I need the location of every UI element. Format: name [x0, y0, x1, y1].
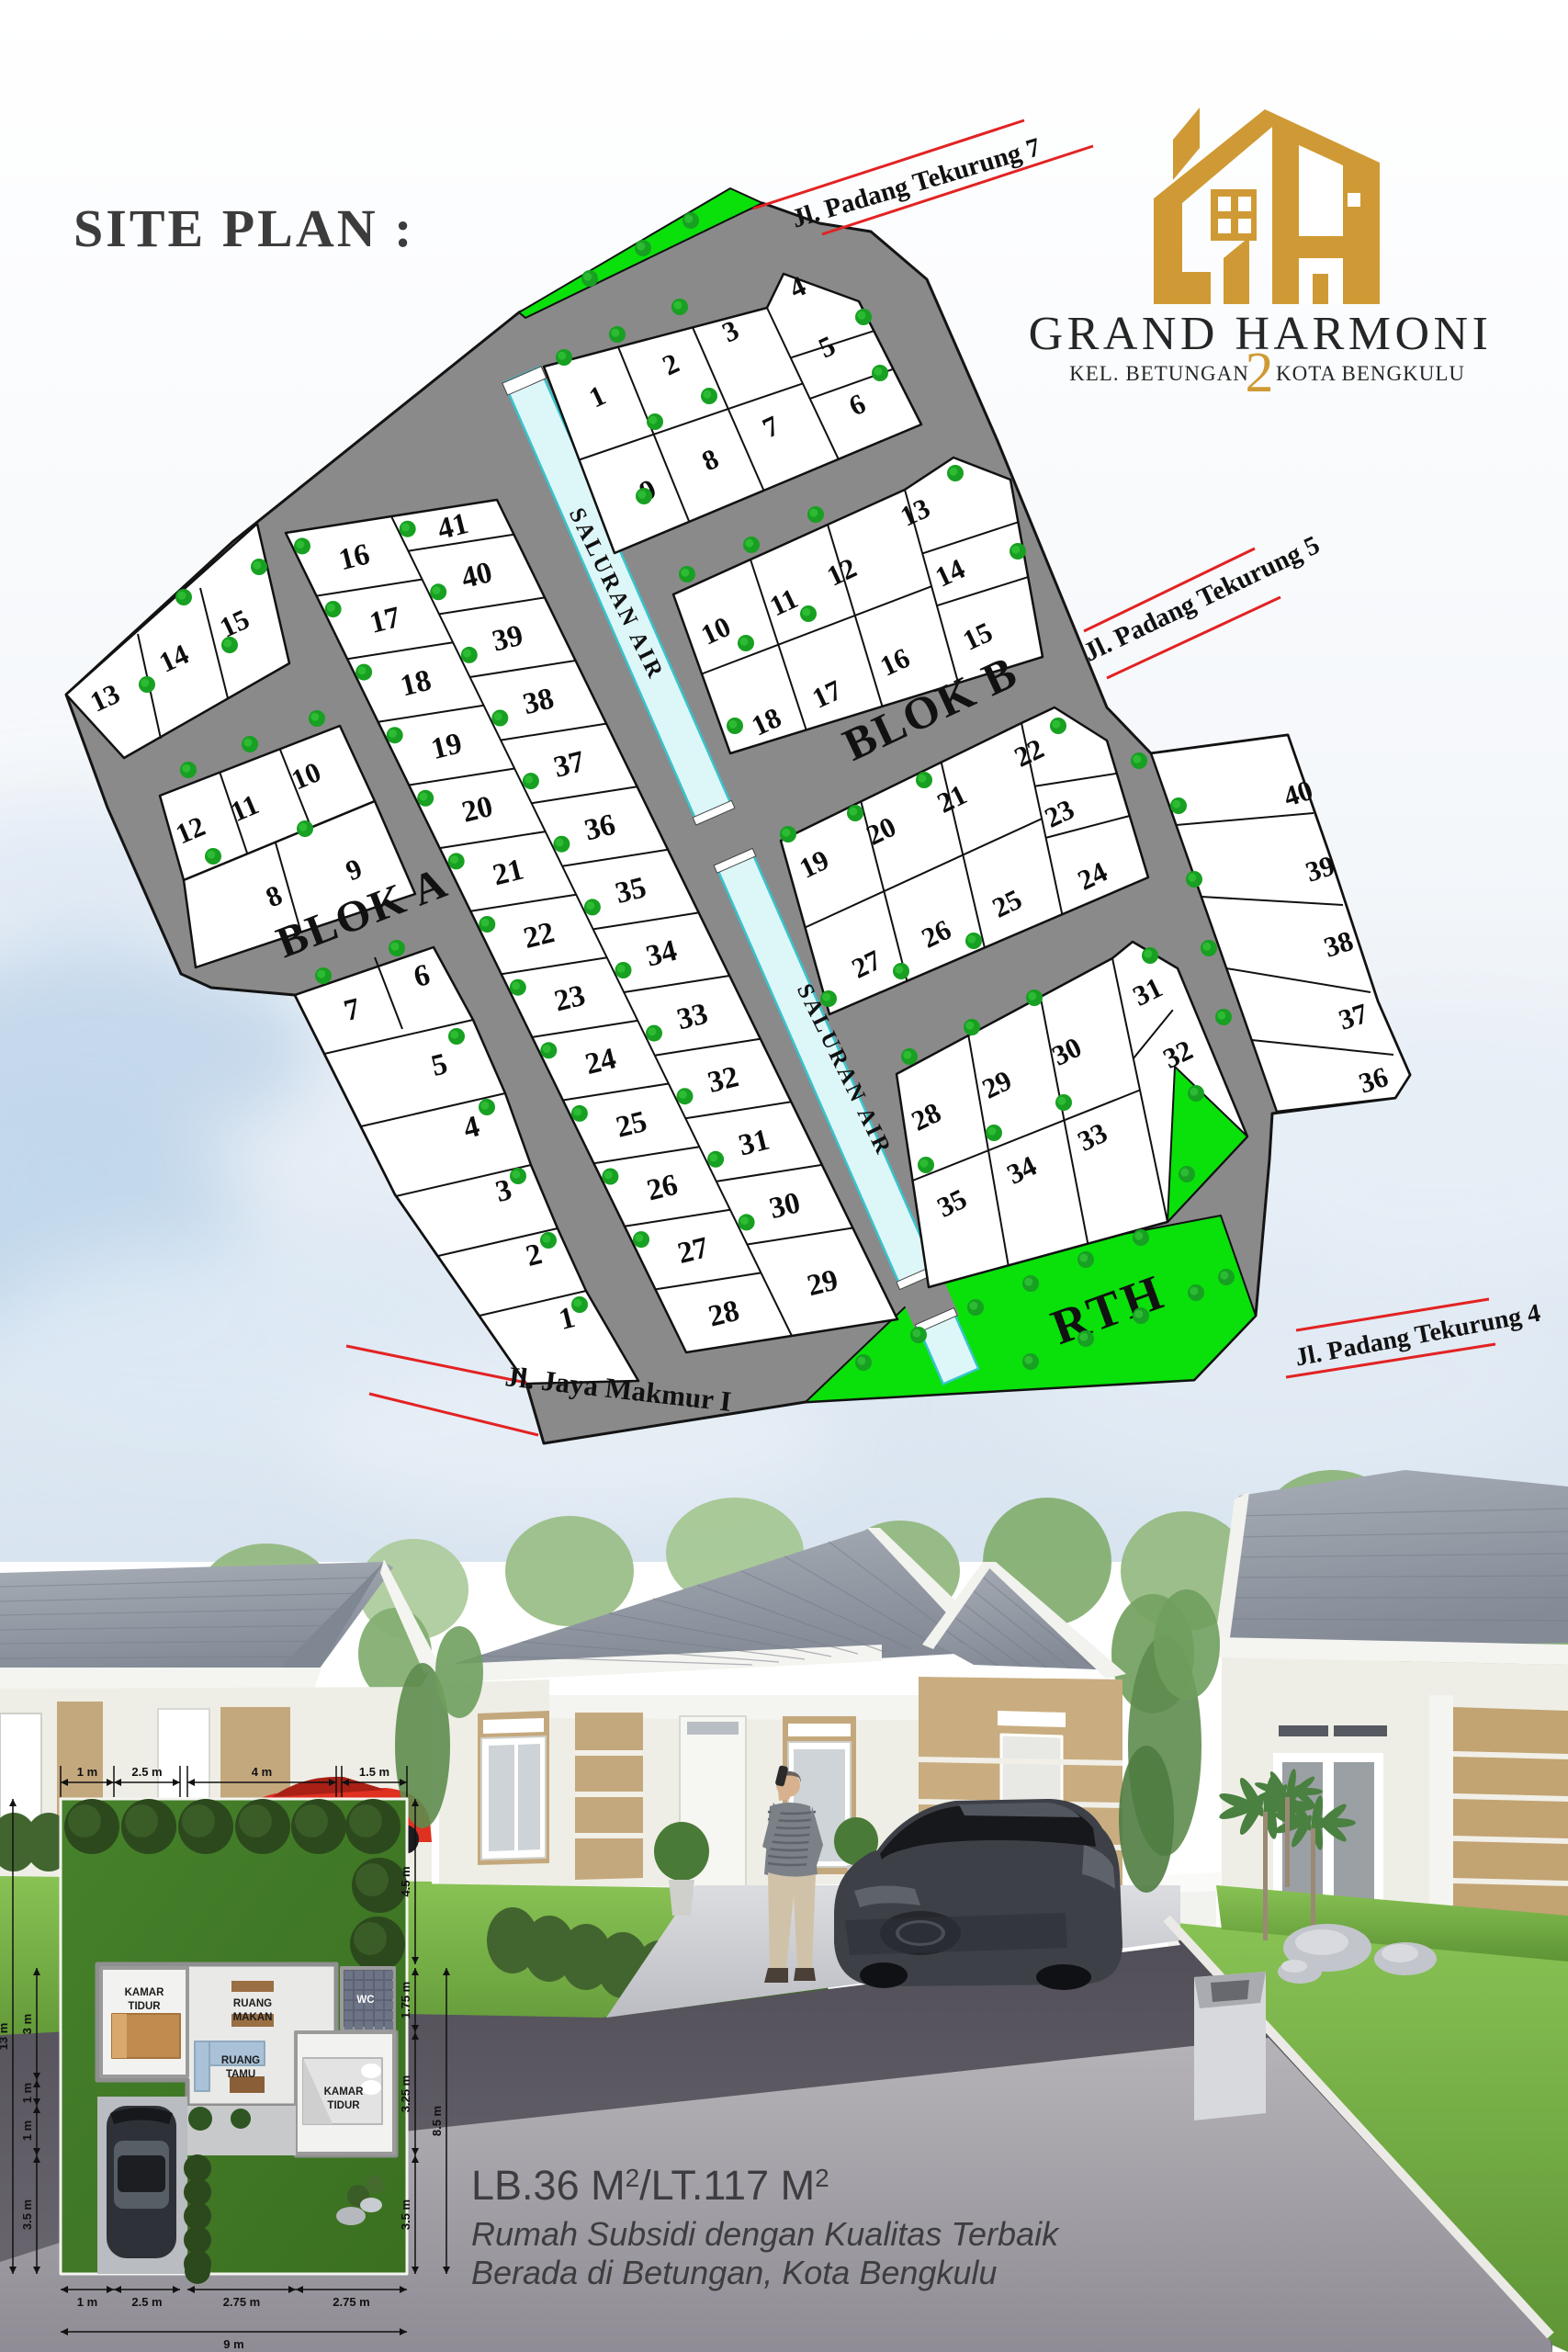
svg-text:SITE PLAN :: SITE PLAN : [73, 198, 414, 258]
svg-text:Rumah Subsidi dengan Kualitas: Rumah Subsidi dengan Kualitas Terbaik [471, 2215, 1060, 2253]
svg-text:2.75 m: 2.75 m [333, 2295, 369, 2309]
svg-text:RUANG: RUANG [221, 2055, 260, 2066]
svg-text:1 m: 1 m [77, 2295, 97, 2309]
svg-text:KAMAR: KAMAR [324, 2086, 364, 2098]
svg-text:RUANG: RUANG [233, 1998, 272, 2009]
svg-text:2.5 m: 2.5 m [131, 2295, 162, 2309]
svg-text:TIDUR: TIDUR [128, 2001, 161, 2012]
svg-text:3 m: 3 m [20, 2014, 34, 2034]
svg-text:3.5 m: 3.5 m [399, 2199, 412, 2230]
svg-text:1 m: 1 m [20, 2120, 34, 2141]
svg-text:1.5 m: 1.5 m [359, 1765, 389, 1779]
svg-text:1.75 m: 1.75 m [399, 1982, 412, 2018]
svg-text:13 m: 13 m [0, 2023, 10, 2051]
svg-text:3.5 m: 3.5 m [20, 2199, 34, 2230]
svg-text:2.75 m: 2.75 m [223, 2295, 260, 2309]
svg-text:9 m: 9 m [223, 2337, 243, 2351]
svg-text:1 m: 1 m [77, 1765, 97, 1779]
svg-text:KAMAR: KAMAR [125, 1987, 164, 1998]
svg-text:TIDUR: TIDUR [327, 2100, 360, 2111]
svg-text:4.5 m: 4.5 m [399, 1866, 412, 1896]
svg-text:KOTA BENGKULU: KOTA BENGKULU [1276, 362, 1465, 385]
svg-text:Berada di Betungan, Kota Bengk: Berada di Betungan, Kota Bengkulu [471, 2254, 997, 2291]
svg-text:LB.36 M2/LT.117 M2: LB.36 M2/LT.117 M2 [471, 2162, 829, 2209]
svg-text:2: 2 [1246, 342, 1274, 404]
svg-text:KEL. BETUNGAN: KEL. BETUNGAN [1069, 362, 1249, 385]
svg-text:3.25 m: 3.25 m [399, 2075, 412, 2112]
svg-text:TAMU: TAMU [226, 2069, 255, 2080]
svg-text:2.5 m: 2.5 m [131, 1765, 162, 1779]
svg-text:WC: WC [356, 1995, 374, 2006]
svg-text:1 m: 1 m [20, 2083, 34, 2103]
svg-text:8.5 m: 8.5 m [430, 2106, 444, 2136]
svg-text:MAKAN: MAKAN [233, 2012, 273, 2023]
svg-text:4 m: 4 m [252, 1765, 272, 1779]
